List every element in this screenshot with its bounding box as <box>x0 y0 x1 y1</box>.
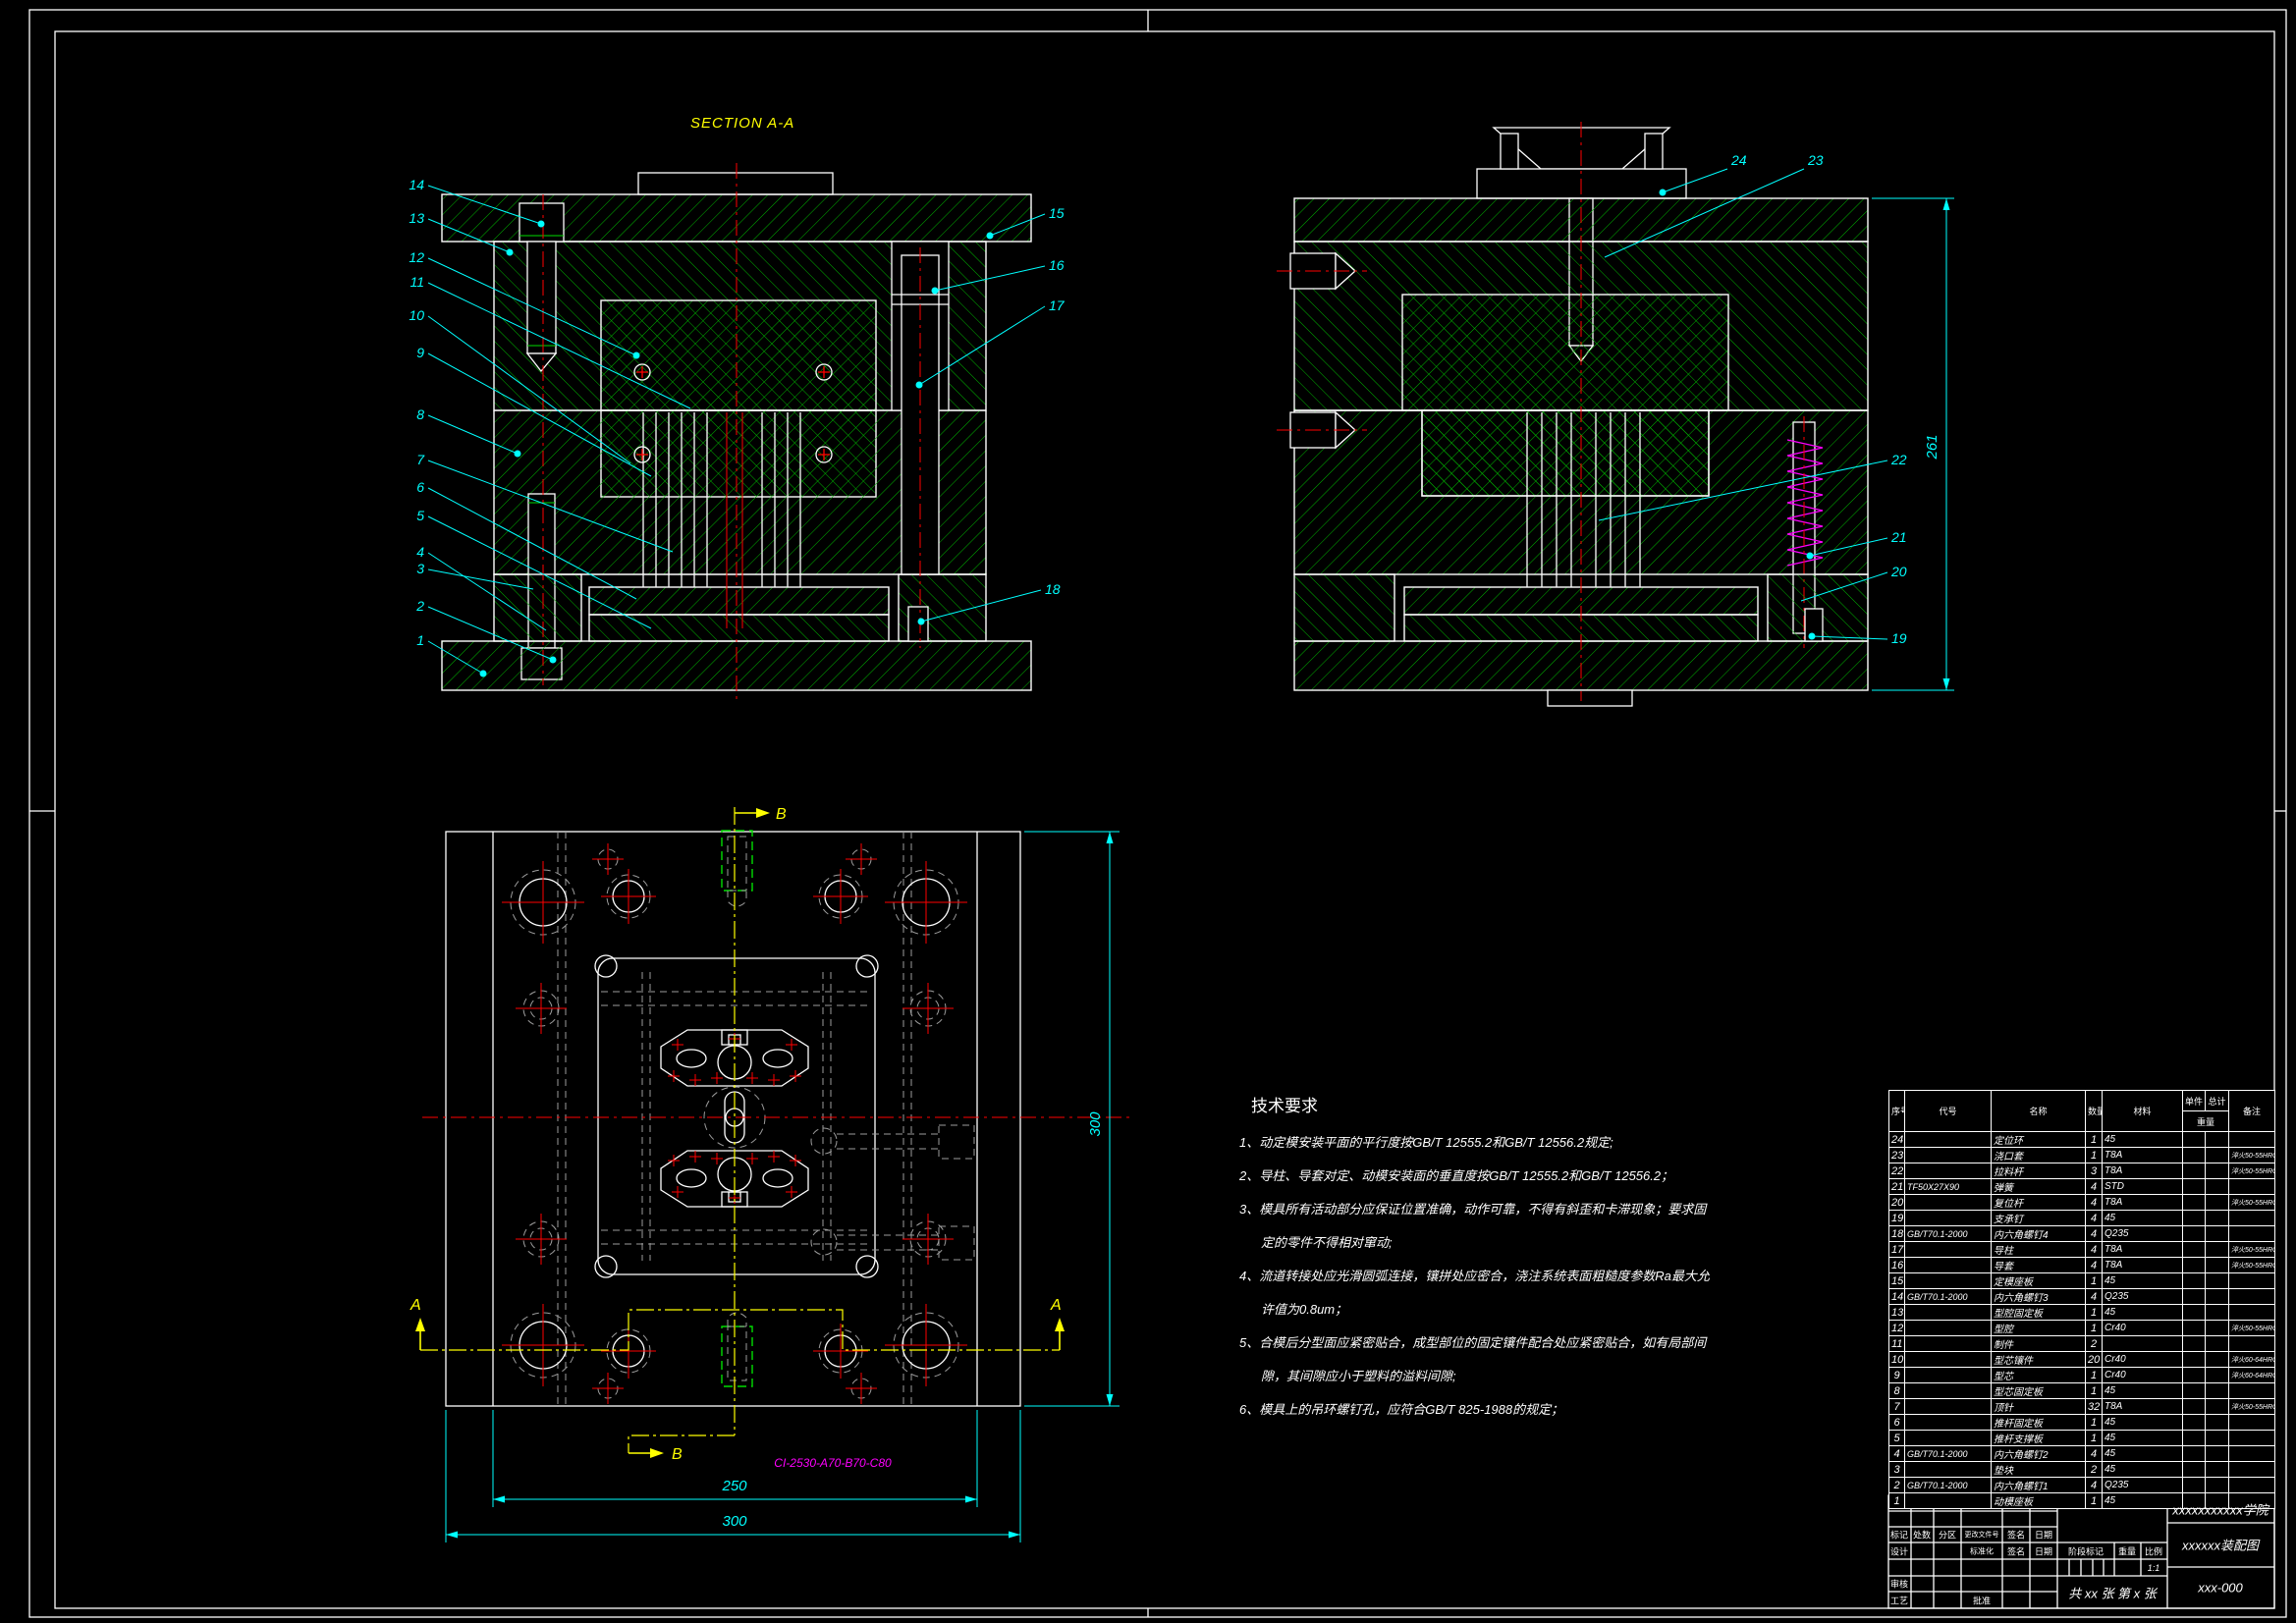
balloon: 2 <box>415 598 424 614</box>
col-unit: 单件 <box>2183 1091 2206 1111</box>
ejector-support-plate-section <box>589 615 889 641</box>
section-b-view: SECTION B-B <box>1277 122 1954 706</box>
drawing-sheet: SECTION A-A <box>0 0 2296 1623</box>
table-row: 22拉料杆3T8A淬火50-55HRC <box>1889 1163 2275 1179</box>
balloon: 24 <box>1730 152 1747 168</box>
plan-view: B B A A 250 300 <box>410 806 1129 1542</box>
support-pin-section <box>908 607 928 641</box>
col-material: 材料 <box>2103 1091 2183 1132</box>
label-check: 审核 <box>1890 1578 1908 1591</box>
label-stage-mark: 阶段标记 <box>2068 1545 2104 1558</box>
table-row: 17导柱4T8A淬火50-55HRC <box>1889 1242 2275 1258</box>
label-sign2: 签名 <box>2007 1545 2025 1558</box>
label-scale: 比例 <box>2145 1545 2162 1558</box>
label-zone: 分区 <box>1939 1529 1956 1542</box>
cut-label: B <box>776 806 787 823</box>
label-change-file: 更改文件号 <box>1965 1530 1999 1540</box>
balloon: 11 <box>410 274 424 290</box>
table-row: 24定位环145 <box>1889 1132 2275 1148</box>
col-qty: 数量 <box>2086 1091 2103 1132</box>
tech-requirement-item: 5、合模后分型面应紧密贴合，成型部位的固定镶件配合处应紧密贴合，如有局部间隙，其… <box>1239 1326 1711 1393</box>
scale-value: 1:1 <box>2148 1563 2160 1573</box>
cut-label: A <box>410 1297 421 1314</box>
cut-label: A <box>1050 1297 1062 1314</box>
cavity-insert-section <box>601 300 876 410</box>
dimension-250: 250 <box>493 1410 977 1507</box>
label-date: 日期 <box>2035 1529 2052 1542</box>
table-row: 23浇口套1T8A淬火50-55HRC <box>1889 1148 2275 1163</box>
balloon: 22 <box>1890 452 1907 467</box>
label-date2: 日期 <box>2035 1545 2052 1558</box>
parts-list-table: 序号 代号 名称 数量 材料 单件 总计 备注 重量 24定位环14523浇口套… <box>1888 1090 2275 1509</box>
table-row: 10型芯镶件20Cr40淬火60-64HRC <box>1889 1352 2275 1368</box>
table-row: 5推杆支撑板145 <box>1889 1431 2275 1446</box>
table-row: 11制件2 <box>1889 1336 2275 1352</box>
ejector-rod-boss-section <box>1548 690 1632 706</box>
balloon: 10 <box>409 307 424 323</box>
table-row: 20复位杆4T8A淬火50-55HRC <box>1889 1195 2275 1211</box>
col-weight: 重量 <box>2183 1111 2229 1132</box>
drawing-title: xxxxxx装配图 <box>2182 1536 2259 1554</box>
tech-requirements-list: 1、动定模安装平面的平行度按GB/T 12555.2和GB/T 12556.2规… <box>1239 1126 1711 1427</box>
table-row: 8型芯固定板145 <box>1889 1383 2275 1399</box>
mold-base-code: CI-2530-A70-B70-C80 <box>774 1456 892 1470</box>
section-a-view: SECTION A-A <box>442 115 1031 699</box>
col-total: 总计 <box>2206 1091 2229 1111</box>
label-weight: 重量 <box>2118 1545 2136 1558</box>
balloon: 9 <box>416 345 424 360</box>
balloon: 3 <box>416 561 424 576</box>
table-row: 2GB/T70.1-2000内六角螺钉14Q235 <box>1889 1478 2275 1493</box>
parts-list-header: 序号 代号 名称 数量 材料 单件 总计 备注 重量 <box>1889 1091 2275 1132</box>
table-row: 19支承钉445 <box>1889 1211 2275 1226</box>
dimension-300-right: 300 <box>1024 832 1120 1406</box>
label-design: 设计 <box>1890 1545 1908 1558</box>
section-a-label: SECTION A-A <box>690 115 794 132</box>
balloon: 5 <box>416 508 424 523</box>
dim-text: 261 <box>1924 434 1941 460</box>
label-mark: 标记 <box>1890 1529 1908 1542</box>
table-row: 21TF50X27X90弹簧4STD <box>1889 1179 2275 1195</box>
parts-table-body: 24定位环14523浇口套1T8A淬火50-55HRC22拉料杆3T8A淬火50… <box>1889 1132 2275 1509</box>
sprue-slot-top <box>722 831 752 906</box>
balloon: 12 <box>409 249 424 265</box>
balloon: 4 <box>416 544 424 560</box>
balloon: 15 <box>1049 205 1065 221</box>
tech-requirement-item: 4、流道转接处应光滑圆弧连接，镶拼处应密合，浇注系统表面粗糙度参数Ra最大允许值… <box>1239 1260 1711 1326</box>
locating-ring-section <box>638 173 833 194</box>
table-row: 6推杆固定板145 <box>1889 1415 2275 1431</box>
tech-requirement-item: 3、模具所有活动部分应保证位置准确，动作可靠，不得有斜歪和卡滞现象；要求固定的零… <box>1239 1193 1711 1260</box>
tech-requirement-item: 1、动定模安装平面的平行度按GB/T 12555.2和GB/T 12556.2规… <box>1239 1126 1711 1160</box>
sheet-note: 共 xx 张 第 x 张 <box>2068 1584 2157 1602</box>
table-row: 4GB/T70.1-2000内六角螺钉2445 <box>1889 1446 2275 1462</box>
col-remark: 备注 <box>2229 1091 2275 1132</box>
drawing-number: xxx-000 <box>2198 1581 2243 1596</box>
balloon: 6 <box>416 479 424 495</box>
balloon: 14 <box>409 177 424 192</box>
section-cut-a: A A <box>410 1297 1065 1350</box>
dim-text: 300 <box>1087 1111 1104 1137</box>
table-row: 9型芯1Cr40淬火60-64HRC <box>1889 1368 2275 1383</box>
label-standardize: 标准化 <box>1970 1546 1994 1557</box>
ejector-retainer-plate-section <box>589 587 889 615</box>
plan-outer-plate <box>446 832 1020 1406</box>
dimension-261: 261 <box>1872 198 1954 690</box>
table-row: 7顶针32T8A淬火50-55HRC <box>1889 1399 2275 1415</box>
dimension-300-bottom: 300 <box>446 1410 1020 1542</box>
section-cut-b: B B <box>629 806 787 1463</box>
balloon: 23 <box>1807 152 1824 168</box>
col-no: 序号 <box>1889 1091 1905 1132</box>
dim-text: 250 <box>721 1478 747 1494</box>
cut-label: B <box>672 1446 683 1463</box>
balloon: 20 <box>1890 564 1907 579</box>
balloon: 8 <box>416 406 424 422</box>
tech-requirement-item: 2、导柱、导套对定、动模安装面的垂直度按GB/T 12555.2和GB/T 12… <box>1239 1160 1711 1193</box>
table-row: 14GB/T70.1-2000内六角螺钉34Q235 <box>1889 1289 2275 1305</box>
col-code: 代号 <box>1905 1091 1992 1132</box>
balloon: 21 <box>1890 529 1907 545</box>
table-row: 12型腔1Cr40淬火50-55HRC <box>1889 1321 2275 1336</box>
label-process: 工艺 <box>1890 1595 1908 1607</box>
table-row: 16导套4T8A淬火50-55HRC <box>1889 1258 2275 1273</box>
label-sign: 签名 <box>2007 1529 2025 1542</box>
cavity-insert-b-section <box>1402 295 1728 410</box>
table-row: 18GB/T70.1-2000内六角螺钉44Q235 <box>1889 1226 2275 1242</box>
balloon: 19 <box>1891 630 1907 646</box>
label-approve: 批准 <box>1973 1595 1991 1607</box>
school-name: xxxxxxxxxxx学院 <box>2172 1500 2269 1519</box>
table-row: 3垫块245 <box>1889 1462 2275 1478</box>
tech-requirement-item: 6、模具上的吊环螺钉孔，应符合GB/T 825-1988的规定； <box>1239 1393 1711 1427</box>
balloon: 1 <box>416 632 424 648</box>
tech-requirements: 技术要求 1、动定模安装平面的平行度按GB/T 12555.2和GB/T 125… <box>1239 1092 1711 1427</box>
table-row: 15定模座板145 <box>1889 1273 2275 1289</box>
balloon: 13 <box>409 210 424 226</box>
spacer-left-b-section <box>1294 574 1394 641</box>
balloon: 17 <box>1049 298 1066 313</box>
balloon: 18 <box>1045 581 1061 597</box>
tech-requirements-title: 技术要求 <box>1251 1092 1711 1116</box>
label-count: 处数 <box>1913 1529 1931 1542</box>
balloon: 16 <box>1049 257 1065 273</box>
table-row: 13型腔固定板145 <box>1889 1305 2275 1321</box>
balloon: 7 <box>416 452 425 467</box>
col-name: 名称 <box>1992 1091 2086 1132</box>
dim-text: 300 <box>722 1513 747 1530</box>
sprue-slot-bottom <box>722 1313 752 1386</box>
guide-hole <box>502 861 584 944</box>
